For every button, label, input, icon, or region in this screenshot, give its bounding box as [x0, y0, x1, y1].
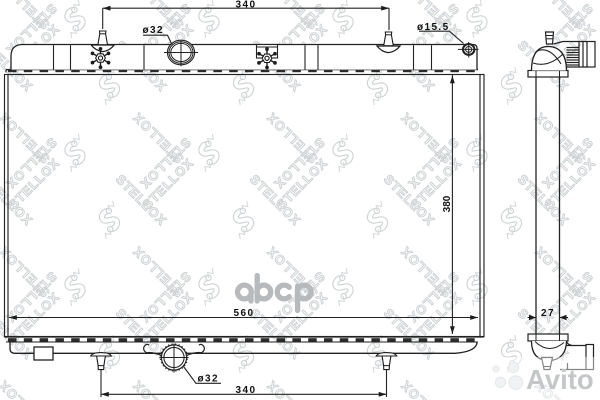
svg-text:Avito: Avito	[526, 364, 594, 395]
svg-text:380: 380	[442, 195, 453, 212]
svg-text:560: 560	[234, 308, 255, 319]
svg-text:340: 340	[236, 0, 257, 10]
svg-text:27: 27	[541, 308, 555, 319]
svg-text:ø32: ø32	[143, 25, 164, 36]
svg-text:340: 340	[236, 385, 257, 396]
